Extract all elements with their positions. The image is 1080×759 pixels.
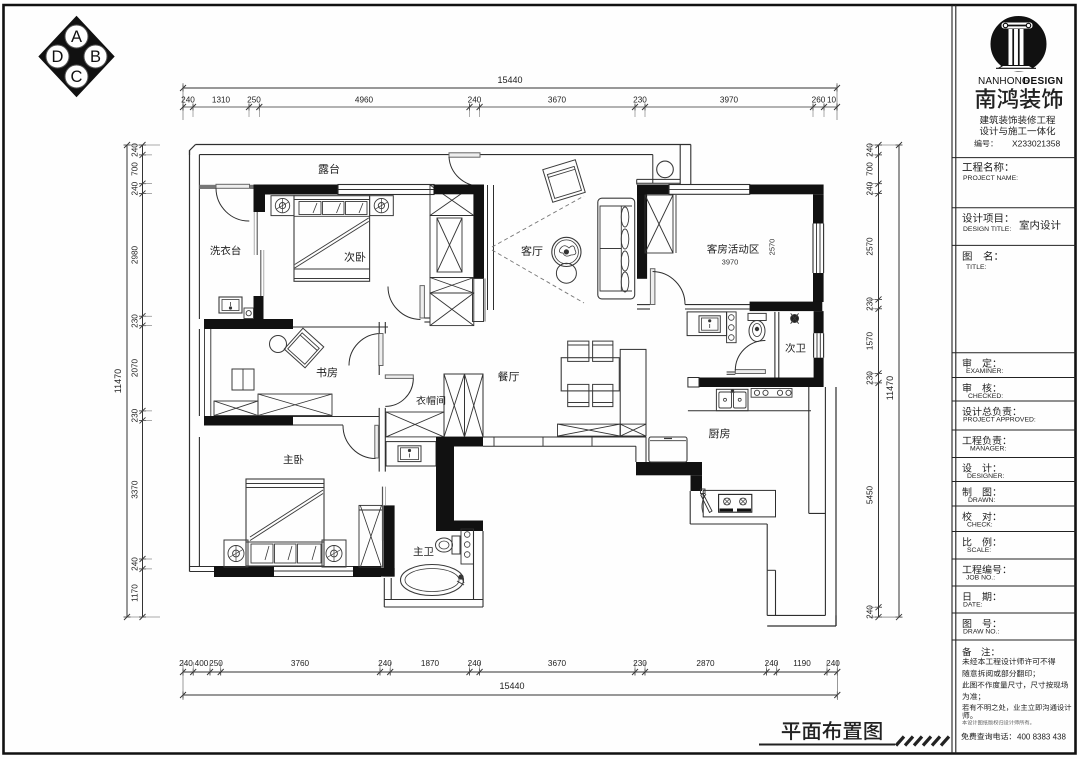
svg-text:1870: 1870 [421,659,440,668]
svg-text:700: 700 [131,162,140,176]
svg-text:260: 260 [812,96,826,105]
svg-text:JOB NO.:: JOB NO.: [966,575,995,582]
svg-text:B: B [90,48,101,66]
svg-text:230: 230 [633,96,647,105]
svg-text:DATE:: DATE: [963,602,983,609]
svg-text:A: A [71,28,82,46]
svg-text:250: 250 [247,96,261,105]
svg-text:250: 250 [209,659,223,668]
svg-text:240: 240 [826,659,840,668]
svg-text:3760: 3760 [291,659,310,668]
svg-text:DESIGN TITLE:: DESIGN TITLE: [963,226,1011,233]
svg-text:C: C [71,68,83,86]
svg-text:PROJECT APPROVED:: PROJECT APPROVED: [963,417,1036,424]
svg-text:3970: 3970 [722,258,739,267]
svg-text:X233021358: X233021358 [1012,139,1060,149]
svg-text:D: D [52,48,64,66]
svg-text:240: 240 [131,557,140,571]
svg-text:DRAW NO.:: DRAW NO.: [963,629,999,636]
svg-text:2870: 2870 [696,659,715,668]
svg-text:2980: 2980 [131,245,140,264]
svg-text:240: 240 [179,659,193,668]
svg-text:240: 240 [131,181,140,195]
svg-text:230: 230 [131,408,140,422]
svg-text:10: 10 [827,96,837,105]
svg-text:700: 700 [866,162,875,176]
svg-text:240: 240 [181,96,195,105]
svg-text:240: 240 [866,605,875,619]
svg-text:1170: 1170 [131,584,140,602]
svg-text:TITLE:: TITLE: [966,264,987,271]
svg-text:1190: 1190 [793,659,811,668]
svg-text:3970: 3970 [720,96,739,105]
svg-text:11470: 11470 [113,369,123,393]
svg-text:4960: 4960 [355,96,374,105]
svg-text:3370: 3370 [131,480,140,499]
svg-text:400 8383 438: 400 8383 438 [1017,732,1066,741]
svg-text:3670: 3670 [548,96,567,105]
svg-text:DESIGN: DESIGN [1023,76,1063,87]
svg-text:2070: 2070 [131,358,140,377]
svg-text:240: 240 [468,96,482,105]
svg-text:400: 400 [195,659,209,668]
svg-text:DRAWN:: DRAWN: [968,497,995,504]
svg-text:5450: 5450 [866,485,875,504]
svg-text:230: 230 [131,314,140,328]
svg-text:EXAMINER:: EXAMINER: [966,368,1004,375]
svg-text:MANAGER:: MANAGER: [970,446,1006,453]
svg-text:3670: 3670 [548,659,567,668]
svg-text:15440: 15440 [499,681,524,691]
svg-text:1310: 1310 [212,96,231,105]
svg-text:2570: 2570 [866,237,875,256]
svg-text:11470: 11470 [885,376,895,400]
svg-text:CHECKED:: CHECKED: [968,393,1003,400]
svg-text:PROJECT NAME:: PROJECT NAME: [963,175,1018,182]
svg-text:CHECK:: CHECK: [967,522,993,529]
svg-text:2570: 2570 [768,239,777,256]
svg-text:15440: 15440 [497,75,522,85]
svg-text:DESIGNER:: DESIGNER: [967,473,1005,480]
svg-text:1570: 1570 [866,331,875,350]
svg-text:SCALE:: SCALE: [967,547,991,554]
